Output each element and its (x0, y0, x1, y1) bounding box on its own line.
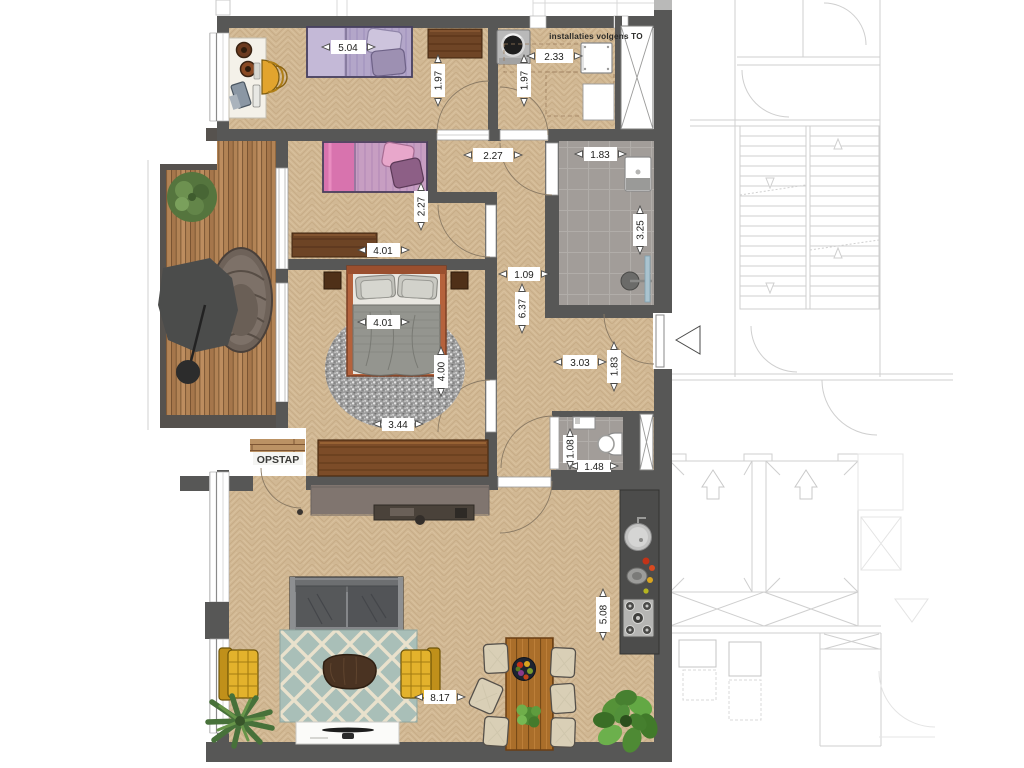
svg-text:1.48: 1.48 (584, 462, 604, 473)
svg-text:2.27: 2.27 (483, 151, 503, 162)
svg-text:1.97: 1.97 (520, 70, 531, 90)
svg-text:1.83: 1.83 (590, 150, 610, 161)
svg-text:1.08: 1.08 (566, 439, 577, 459)
svg-text:3.25: 3.25 (636, 220, 647, 240)
svg-text:5.04: 5.04 (338, 43, 358, 54)
svg-text:6.37: 6.37 (518, 298, 529, 318)
svg-text:installaties volgens TO: installaties volgens TO (549, 32, 643, 41)
svg-text:1.09: 1.09 (514, 270, 534, 281)
svg-text:3.44: 3.44 (388, 420, 408, 431)
svg-text:1.97: 1.97 (434, 70, 445, 90)
svg-text:3.03: 3.03 (570, 358, 590, 369)
svg-text:OPSTAP: OPSTAP (257, 454, 299, 466)
svg-text:8.17: 8.17 (430, 693, 450, 704)
svg-text:2.33: 2.33 (544, 52, 564, 63)
svg-text:1.83: 1.83 (610, 356, 621, 376)
svg-text:4.00: 4.00 (437, 361, 448, 381)
svg-text:5.08: 5.08 (599, 604, 610, 624)
svg-text:4.01: 4.01 (373, 246, 393, 257)
svg-text:2.27: 2.27 (417, 196, 428, 216)
svg-text:4.01: 4.01 (373, 318, 393, 329)
